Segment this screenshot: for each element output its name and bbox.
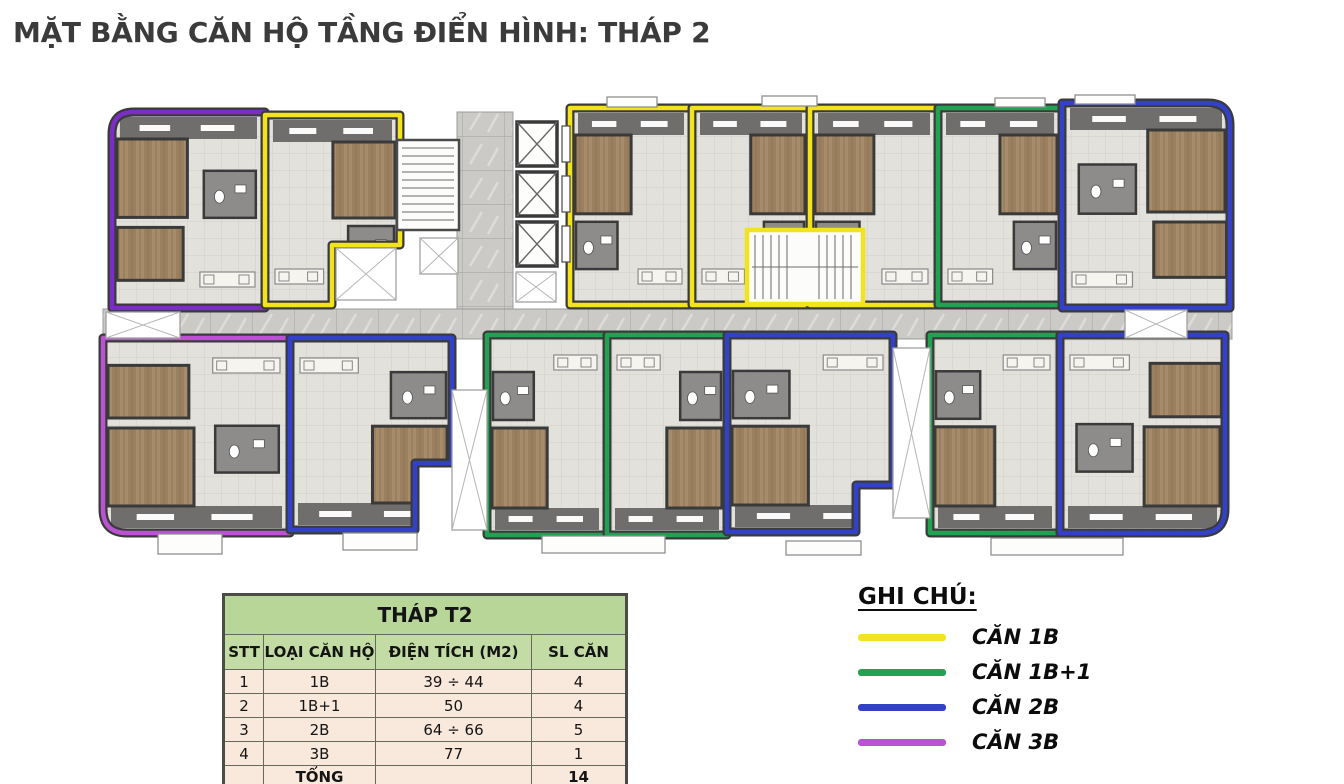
unit-2B <box>727 335 893 532</box>
unit-3B <box>103 338 290 533</box>
table-row: 32B64 ÷ 665 <box>224 718 627 742</box>
sink <box>601 236 612 244</box>
window-sill <box>509 516 533 522</box>
bedroom <box>1154 222 1227 277</box>
table-total-row: TỔNG 14 <box>224 766 627 784</box>
unit-1B <box>570 108 692 305</box>
window-sill <box>319 511 351 517</box>
window-sill <box>953 514 979 520</box>
kitchen-counter <box>275 269 324 284</box>
elevator-shaft <box>517 222 570 266</box>
sink <box>235 185 246 193</box>
unit-1B+1 <box>930 335 1060 533</box>
kitchen-counter <box>213 358 280 373</box>
balcony <box>762 96 817 106</box>
bedroom <box>815 135 874 214</box>
window-sill <box>960 121 985 127</box>
balcony <box>991 538 1123 555</box>
window-sill <box>833 121 859 127</box>
table-body: 11B39 ÷ 44421B+150432B64 ÷ 66543B771 <box>224 670 627 766</box>
sink <box>767 385 778 393</box>
bathroom <box>733 371 789 418</box>
kitchen-counter <box>1003 355 1050 370</box>
bedroom <box>333 142 395 218</box>
kitchen-counter <box>638 269 682 284</box>
toilet <box>229 445 239 458</box>
sink <box>1113 179 1124 187</box>
sink <box>1039 236 1050 244</box>
total-label: TỔNG <box>264 766 376 784</box>
stairwell <box>747 230 863 304</box>
legend-label: CĂN 3B <box>972 730 1059 754</box>
window-sill <box>641 121 668 127</box>
legend: GHI CHÚ: CĂN 1BCĂN 1B+1CĂN 2BCĂN 3B <box>858 584 1091 766</box>
window-sill <box>289 128 316 134</box>
bedroom <box>1000 135 1057 214</box>
toilet <box>1021 241 1031 254</box>
bathroom <box>204 171 256 218</box>
kitchen-counter <box>882 269 928 284</box>
unit-summary-table: THÁP T2 STT LOẠI CĂN HỘ ĐIỆN TÍCH (M2) S… <box>222 593 628 784</box>
unit-2B <box>290 338 452 530</box>
window-sill <box>201 125 235 131</box>
bathroom <box>391 372 446 418</box>
table-row: 43B771 <box>224 742 627 766</box>
window-sill <box>1159 116 1196 122</box>
sink <box>424 386 435 394</box>
sink <box>517 386 528 394</box>
floor-plan <box>0 0 1344 784</box>
legend-item: CĂN 2B <box>858 696 1091 718</box>
ledge <box>111 506 282 528</box>
unit-1B+1 <box>607 335 727 535</box>
void-shaft <box>516 272 556 302</box>
balcony <box>607 97 657 107</box>
unit-2B <box>1060 335 1225 533</box>
bedroom <box>108 365 189 418</box>
legend-item: CĂN 1B <box>858 626 1091 648</box>
table-row: 21B+1504 <box>224 694 627 718</box>
unit-1B+1 <box>938 108 1062 305</box>
sink <box>963 386 974 394</box>
sink <box>705 386 716 394</box>
bedroom <box>667 428 722 508</box>
floorplan-page: MẶT BẰNG CĂN HỘ TẦNG ĐIỂN HÌNH: THÁP 2 T… <box>0 0 1344 784</box>
kitchen-counter <box>200 272 255 287</box>
legend-label: CĂN 1B+1 <box>972 660 1091 684</box>
toilet <box>583 241 593 254</box>
unit-1B+1 <box>487 335 607 535</box>
unit-2B <box>1062 103 1230 308</box>
bathroom <box>493 372 534 420</box>
void-shaft <box>893 348 930 518</box>
window-sill <box>592 121 616 127</box>
window-sill <box>1005 514 1034 520</box>
bedroom <box>575 135 631 214</box>
legend-label: CĂN 1B <box>972 625 1059 649</box>
total-value: 14 <box>532 766 627 784</box>
void-shaft <box>420 238 458 274</box>
window-sill <box>211 514 252 520</box>
bedroom <box>751 135 805 214</box>
legend-heading: GHI CHÚ: <box>858 584 1091 610</box>
balcony <box>995 98 1045 107</box>
bathroom <box>1077 424 1133 472</box>
toilet <box>687 392 697 405</box>
col-header-stt: STT <box>224 635 264 670</box>
kitchen-counter <box>1072 272 1132 287</box>
bedroom <box>1144 427 1220 506</box>
toilet <box>1088 444 1098 457</box>
legend-item: CĂN 1B+1 <box>858 661 1091 683</box>
toilet <box>1091 185 1101 198</box>
bathroom <box>1014 222 1056 269</box>
col-header-count: SL CĂN <box>532 635 627 670</box>
window-sill <box>713 121 737 127</box>
legend-item: CĂN 3B <box>858 731 1091 753</box>
stairwell <box>397 140 459 230</box>
balcony <box>158 534 222 554</box>
window-sill <box>137 514 174 520</box>
window-sill <box>557 516 583 522</box>
kitchen-counter <box>300 358 358 373</box>
window-sill <box>884 121 912 127</box>
elevator-shaft <box>517 122 570 166</box>
window-sill <box>1090 514 1123 520</box>
bathroom <box>576 222 617 269</box>
toilet <box>745 390 755 403</box>
bedroom <box>117 139 187 217</box>
table-row: 11B39 ÷ 444 <box>224 670 627 694</box>
void-shaft <box>106 312 180 338</box>
toilet <box>402 391 412 404</box>
bathroom <box>215 426 279 473</box>
bathroom <box>1079 165 1136 214</box>
toilet <box>500 392 510 405</box>
window-sill <box>760 121 786 127</box>
legend-label: CĂN 2B <box>972 695 1059 719</box>
kitchen-counter <box>948 269 993 284</box>
col-header-area: ĐIỆN TÍCH (M2) <box>376 635 532 670</box>
col-header-type: LOẠI CĂN HỘ <box>264 635 376 670</box>
void-shaft <box>1125 310 1187 338</box>
legend-color-line <box>858 669 946 676</box>
balcony <box>542 536 665 553</box>
toilet <box>944 391 954 404</box>
legend-color-line <box>858 634 946 641</box>
window-sill <box>343 128 373 134</box>
window-sill <box>1010 121 1037 127</box>
bedroom <box>108 428 194 506</box>
window-sill <box>757 513 790 519</box>
sink <box>253 440 264 448</box>
window-sill <box>629 516 653 522</box>
bedroom <box>1150 363 1221 416</box>
balcony <box>1075 95 1135 104</box>
kitchen-counter <box>823 355 883 370</box>
elevator-lobby <box>457 112 513 309</box>
void-shaft <box>336 248 396 300</box>
void-shaft <box>452 390 487 530</box>
window-sill <box>1156 514 1192 520</box>
window-sill <box>1092 116 1126 122</box>
bathroom <box>936 371 980 419</box>
table-title: THÁP T2 <box>224 595 627 635</box>
window-sill <box>140 125 171 131</box>
legend-color-line <box>858 739 946 746</box>
sink <box>1110 438 1121 446</box>
toilet <box>214 190 224 203</box>
balcony <box>786 541 861 555</box>
legend-items: CĂN 1BCĂN 1B+1CĂN 2BCĂN 3B <box>858 626 1091 753</box>
bedroom <box>935 427 995 506</box>
elevator-shaft <box>517 172 570 216</box>
window-sill <box>677 516 703 522</box>
legend-color-line <box>858 704 946 711</box>
bedroom <box>1148 130 1225 212</box>
kitchen-counter <box>1070 355 1129 370</box>
bathroom <box>680 372 721 420</box>
bedroom <box>732 426 808 505</box>
unit-2B <box>112 112 265 308</box>
balcony <box>343 533 417 550</box>
bedroom <box>492 428 547 508</box>
bedroom <box>117 227 183 280</box>
